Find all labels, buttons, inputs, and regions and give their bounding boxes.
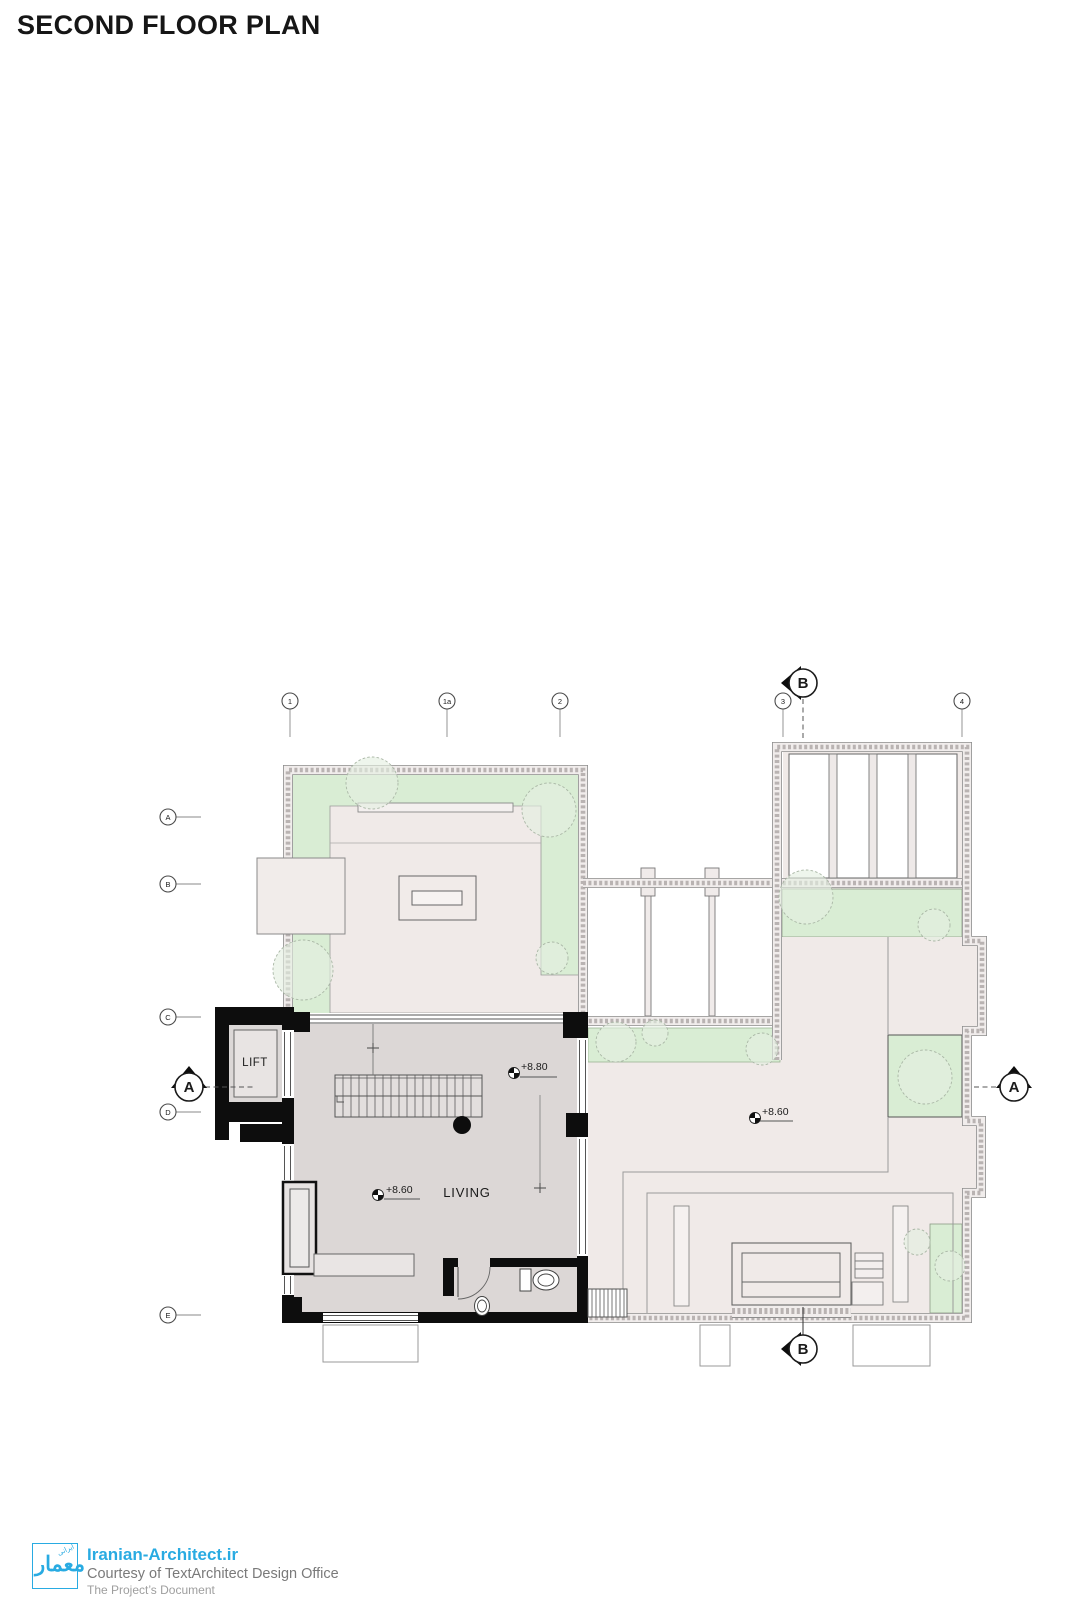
counter — [314, 1254, 414, 1276]
tree-icon — [918, 909, 950, 941]
grid-row-a: A — [160, 809, 201, 825]
grid-label: 1a — [443, 697, 452, 706]
grid-label: E — [165, 1311, 170, 1320]
exterior-stair — [588, 1289, 627, 1317]
level-value: +8.80 — [521, 1061, 548, 1073]
grid-column-2: 2 — [552, 693, 568, 737]
grid-label: 1 — [288, 697, 292, 706]
footer: معمار ایرانی Iranian-Architect.ir Courte… — [32, 1543, 339, 1598]
grid-column-1: 1 — [282, 693, 298, 737]
tree-icon — [346, 757, 398, 809]
central-planter — [732, 1243, 851, 1305]
sink — [475, 1297, 490, 1316]
tree-icon — [779, 870, 833, 924]
grid-label: C — [165, 1013, 171, 1022]
grid-row-b: B — [160, 876, 201, 892]
level-value: +8.60 — [386, 1184, 413, 1196]
drawing-sheet: SECOND FLOOR PLAN — [0, 0, 1080, 1620]
grid-row-d: D — [160, 1104, 201, 1120]
tree-icon — [596, 1022, 636, 1062]
section-label: A — [184, 1079, 195, 1096]
tree-icon — [935, 1251, 965, 1281]
section-label: B — [798, 1341, 809, 1358]
grid-row-e: E — [160, 1307, 201, 1323]
footer-document-text: The Project’s Document — [87, 1583, 339, 1598]
tree-icon — [746, 1033, 778, 1065]
toilet — [520, 1269, 559, 1291]
structural-column — [453, 1116, 471, 1134]
upper-left-balcony — [257, 858, 345, 934]
grid-column-4: 4 — [954, 693, 970, 737]
grid-row-c: C — [160, 1009, 201, 1025]
tree-icon — [642, 1020, 668, 1046]
section-label: A — [1009, 1079, 1020, 1096]
lift-label: LIFT — [242, 1057, 268, 1069]
grid-column-3: 3 — [775, 693, 791, 737]
living-block — [215, 1007, 627, 1362]
grid-label: B — [165, 880, 170, 889]
tree-icon — [522, 783, 576, 837]
tree-icon — [898, 1050, 952, 1104]
level-value: +8.60 — [762, 1106, 789, 1118]
floor-plan-canvas: 1 1a 2 3 4 A B — [0, 0, 1080, 1620]
grid-label: 3 — [781, 697, 785, 706]
lower-balcony — [323, 1325, 418, 1362]
tree-icon — [904, 1229, 930, 1255]
living-label: LIVING — [443, 1185, 490, 1200]
grid-label: D — [165, 1108, 171, 1117]
section-label: B — [798, 675, 809, 692]
tree-icon — [536, 942, 568, 974]
grid-label: 2 — [558, 697, 562, 706]
grid-label: 4 — [960, 697, 964, 706]
footer-courtesy-text: Courtesy of TextArchitect Design Office — [87, 1565, 339, 1583]
stair — [335, 1075, 482, 1117]
grid-column-1a: 1a — [439, 693, 455, 737]
grid-label: A — [165, 813, 170, 822]
skylight — [399, 876, 476, 920]
iranian-architect-logo-icon: معمار ایرانی — [32, 1543, 78, 1589]
footer-site-link[interactable]: Iranian-Architect.ir — [87, 1544, 339, 1565]
tree-icon — [273, 940, 333, 1000]
logo-calligraphy: معمار — [35, 1552, 75, 1577]
bottom-wall — [282, 1312, 588, 1362]
section-marker-a-right: A — [974, 1066, 1032, 1101]
